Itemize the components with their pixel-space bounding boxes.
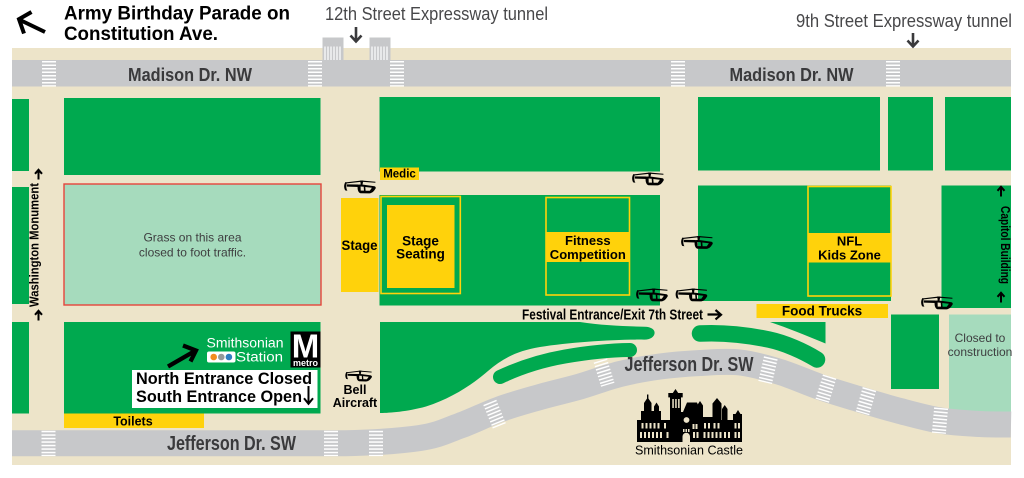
svg-text:Festival Entrance/Exit 7th Str: Festival Entrance/Exit 7th Street — [522, 308, 703, 324]
svg-text:Constitution Ave.: Constitution Ave. — [64, 23, 218, 45]
svg-text:Toilets: Toilets — [113, 415, 152, 429]
svg-text:Madison Dr. NW: Madison Dr. NW — [128, 64, 252, 85]
svg-text:9th Street Expressway tunnel: 9th Street Expressway tunnel — [796, 11, 1012, 31]
svg-text:Competition: Competition — [550, 247, 626, 262]
svg-text:Smithsonian: Smithsonian — [207, 336, 284, 351]
svg-text:Grass on this area: Grass on this area — [143, 231, 241, 245]
svg-text:Washington Monument: Washington Monument — [27, 182, 42, 307]
svg-text:12th Street Expressway tunnel: 12th Street Expressway tunnel — [325, 4, 548, 24]
svg-text:Fitness: Fitness — [565, 233, 611, 248]
svg-text:Bell: Bell — [344, 383, 367, 397]
svg-text:Kids Zone: Kids Zone — [818, 248, 881, 263]
svg-text:NFL: NFL — [837, 234, 862, 249]
svg-text:Closed to: Closed to — [955, 331, 1006, 345]
svg-text:Medic: Medic — [383, 169, 416, 181]
svg-text:Stage: Stage — [342, 238, 378, 253]
svg-text:Food Trucks: Food Trucks — [782, 304, 862, 319]
svg-text:Capitol Building: Capitol Building — [998, 206, 1013, 284]
svg-text:Jefferson Dr. SW: Jefferson Dr. SW — [625, 354, 754, 376]
svg-text:construction: construction — [948, 345, 1013, 359]
svg-text:Station: Station — [236, 350, 283, 365]
svg-text:North Entrance Closed: North Entrance Closed — [136, 369, 312, 388]
svg-text:Army Birthday Parade on: Army Birthday Parade on — [64, 3, 290, 25]
svg-text:Jefferson Dr. SW: Jefferson Dr. SW — [167, 433, 296, 455]
svg-text:South Entrance Open: South Entrance Open — [136, 387, 302, 406]
svg-text:Madison Dr. NW: Madison Dr. NW — [730, 64, 854, 85]
svg-text:Seating: Seating — [396, 247, 445, 262]
svg-text:closed to foot traffic.: closed to foot traffic. — [139, 246, 246, 260]
svg-text:Smithsonian Castle: Smithsonian Castle — [635, 443, 743, 458]
svg-text:metro: metro — [293, 358, 318, 368]
svg-text:Aircraft: Aircraft — [333, 396, 378, 410]
